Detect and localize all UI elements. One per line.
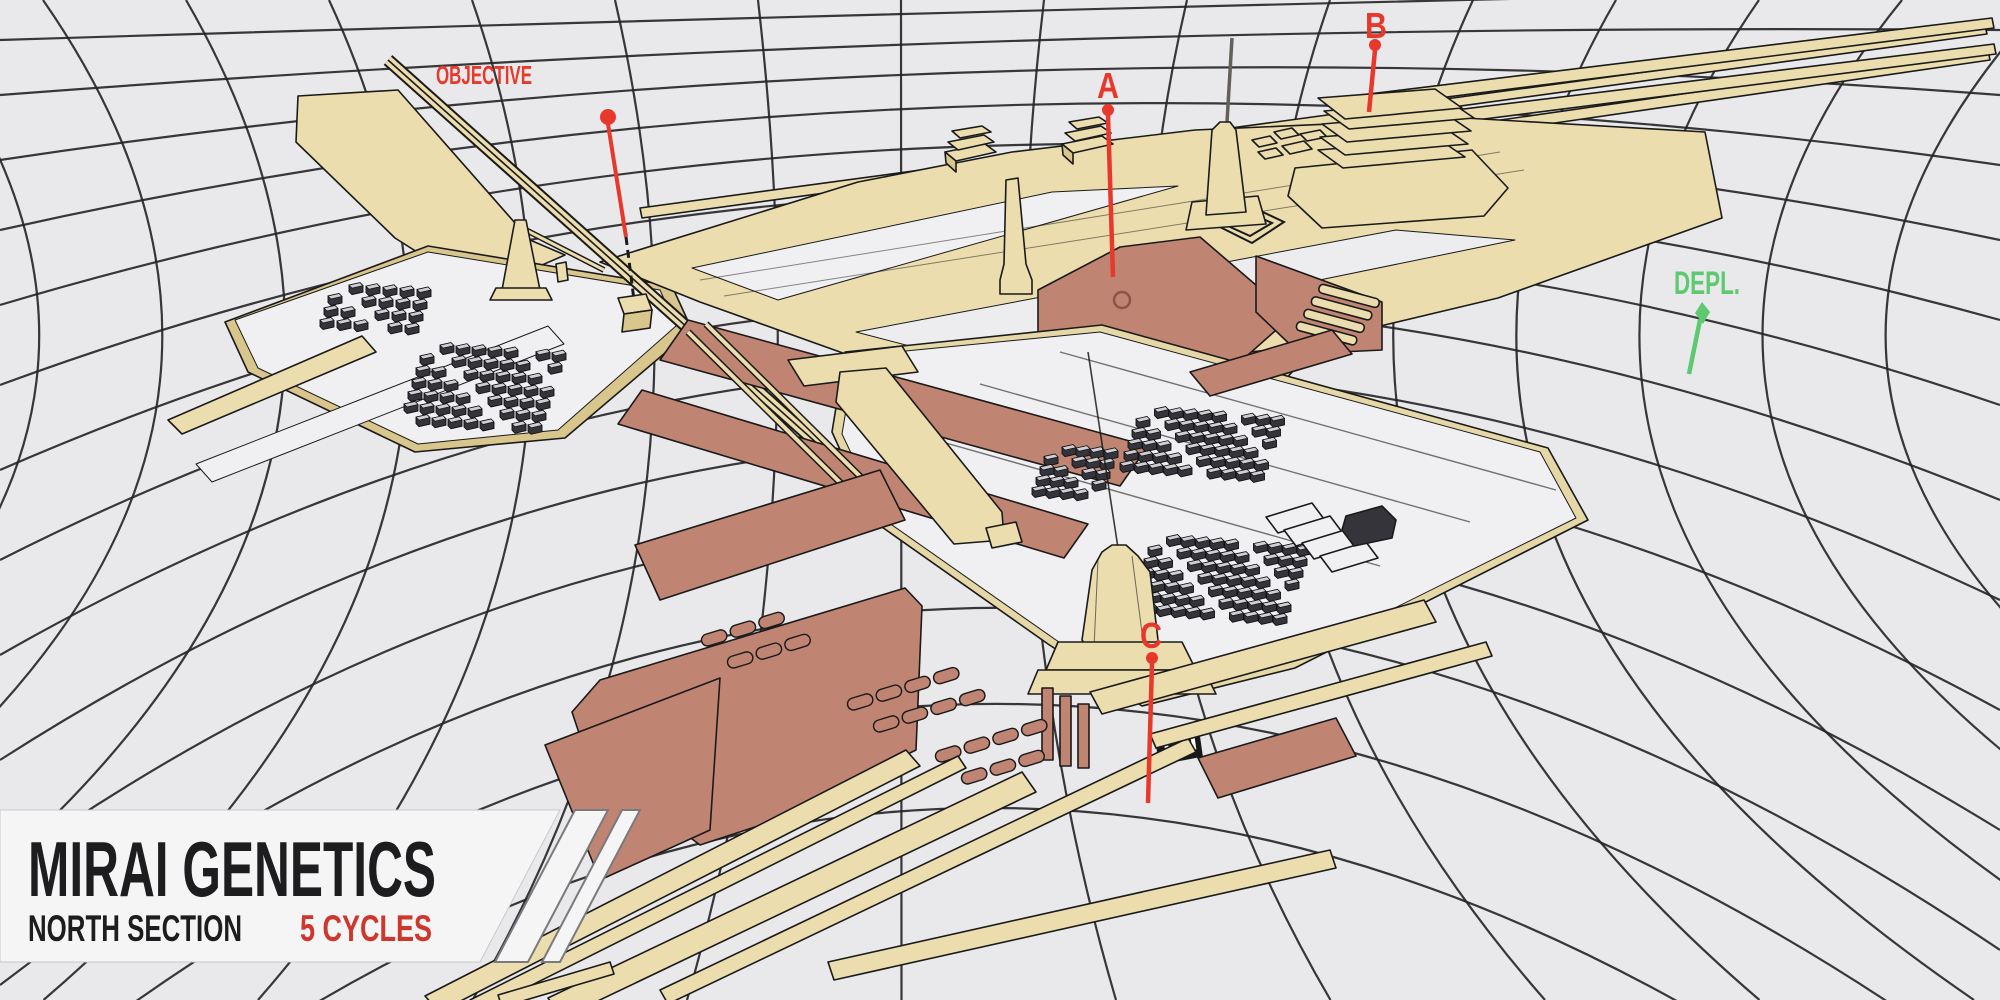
objective-junction-box — [618, 294, 652, 332]
pipe-segment — [929, 697, 957, 716]
section-name: NORTH SECTION — [28, 908, 242, 949]
pipe-segment — [991, 727, 1019, 746]
deployment-label: DEPL. — [1674, 265, 1740, 301]
point-b-label: B — [1365, 5, 1387, 46]
pipe-segment — [932, 666, 960, 685]
grid-line-h — [0, 0, 2000, 40]
facility-map: MIRAI GENETICS NORTH SECTION 5 CYCLES OB… — [0, 0, 2000, 1000]
objective-label: OBJECTIVE — [436, 60, 532, 90]
point-c-label: C — [1140, 615, 1162, 656]
facility-name: MIRAI GENETICS — [28, 825, 436, 913]
pipe-segment — [963, 736, 991, 755]
pipe-segment — [989, 758, 1017, 777]
objective-dot-icon — [600, 109, 616, 125]
pipe-cluster — [960, 749, 1046, 786]
grid-line-v — [1886, 0, 2000, 1000]
cycles-count: 5 CYCLES — [300, 908, 432, 949]
pipe-segment — [1017, 749, 1045, 768]
point-a-label: A — [1097, 65, 1119, 106]
